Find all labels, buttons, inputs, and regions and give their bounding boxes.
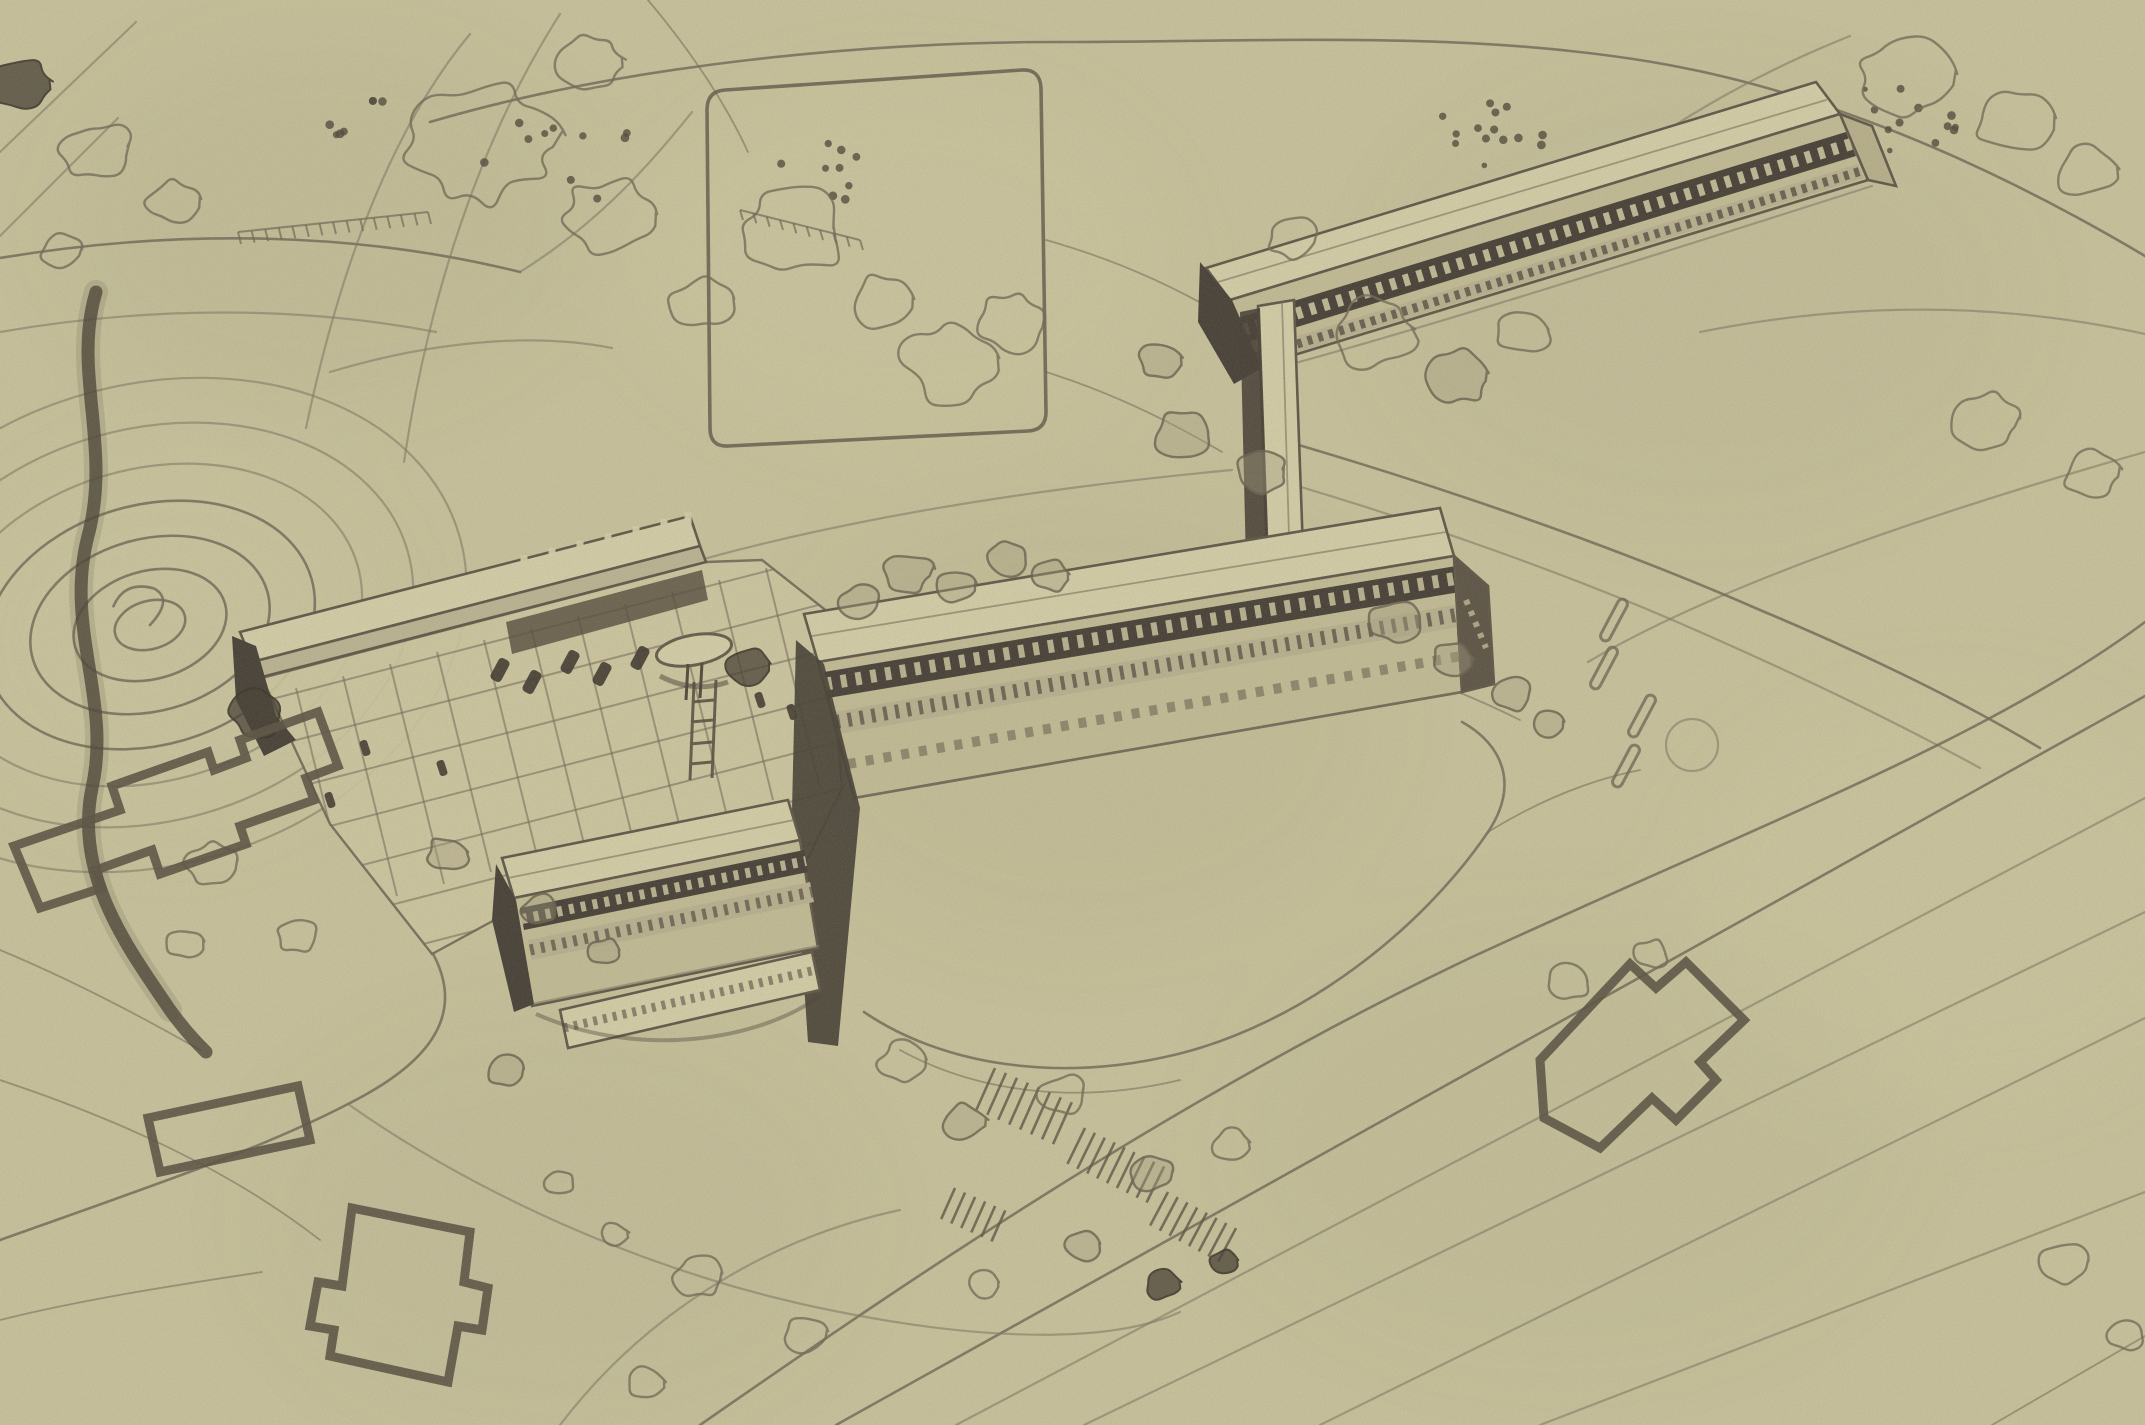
site-perspective-drawing xyxy=(0,0,2145,1425)
halftone-grain-light xyxy=(0,0,2145,1425)
sketch-page xyxy=(0,0,2145,1425)
